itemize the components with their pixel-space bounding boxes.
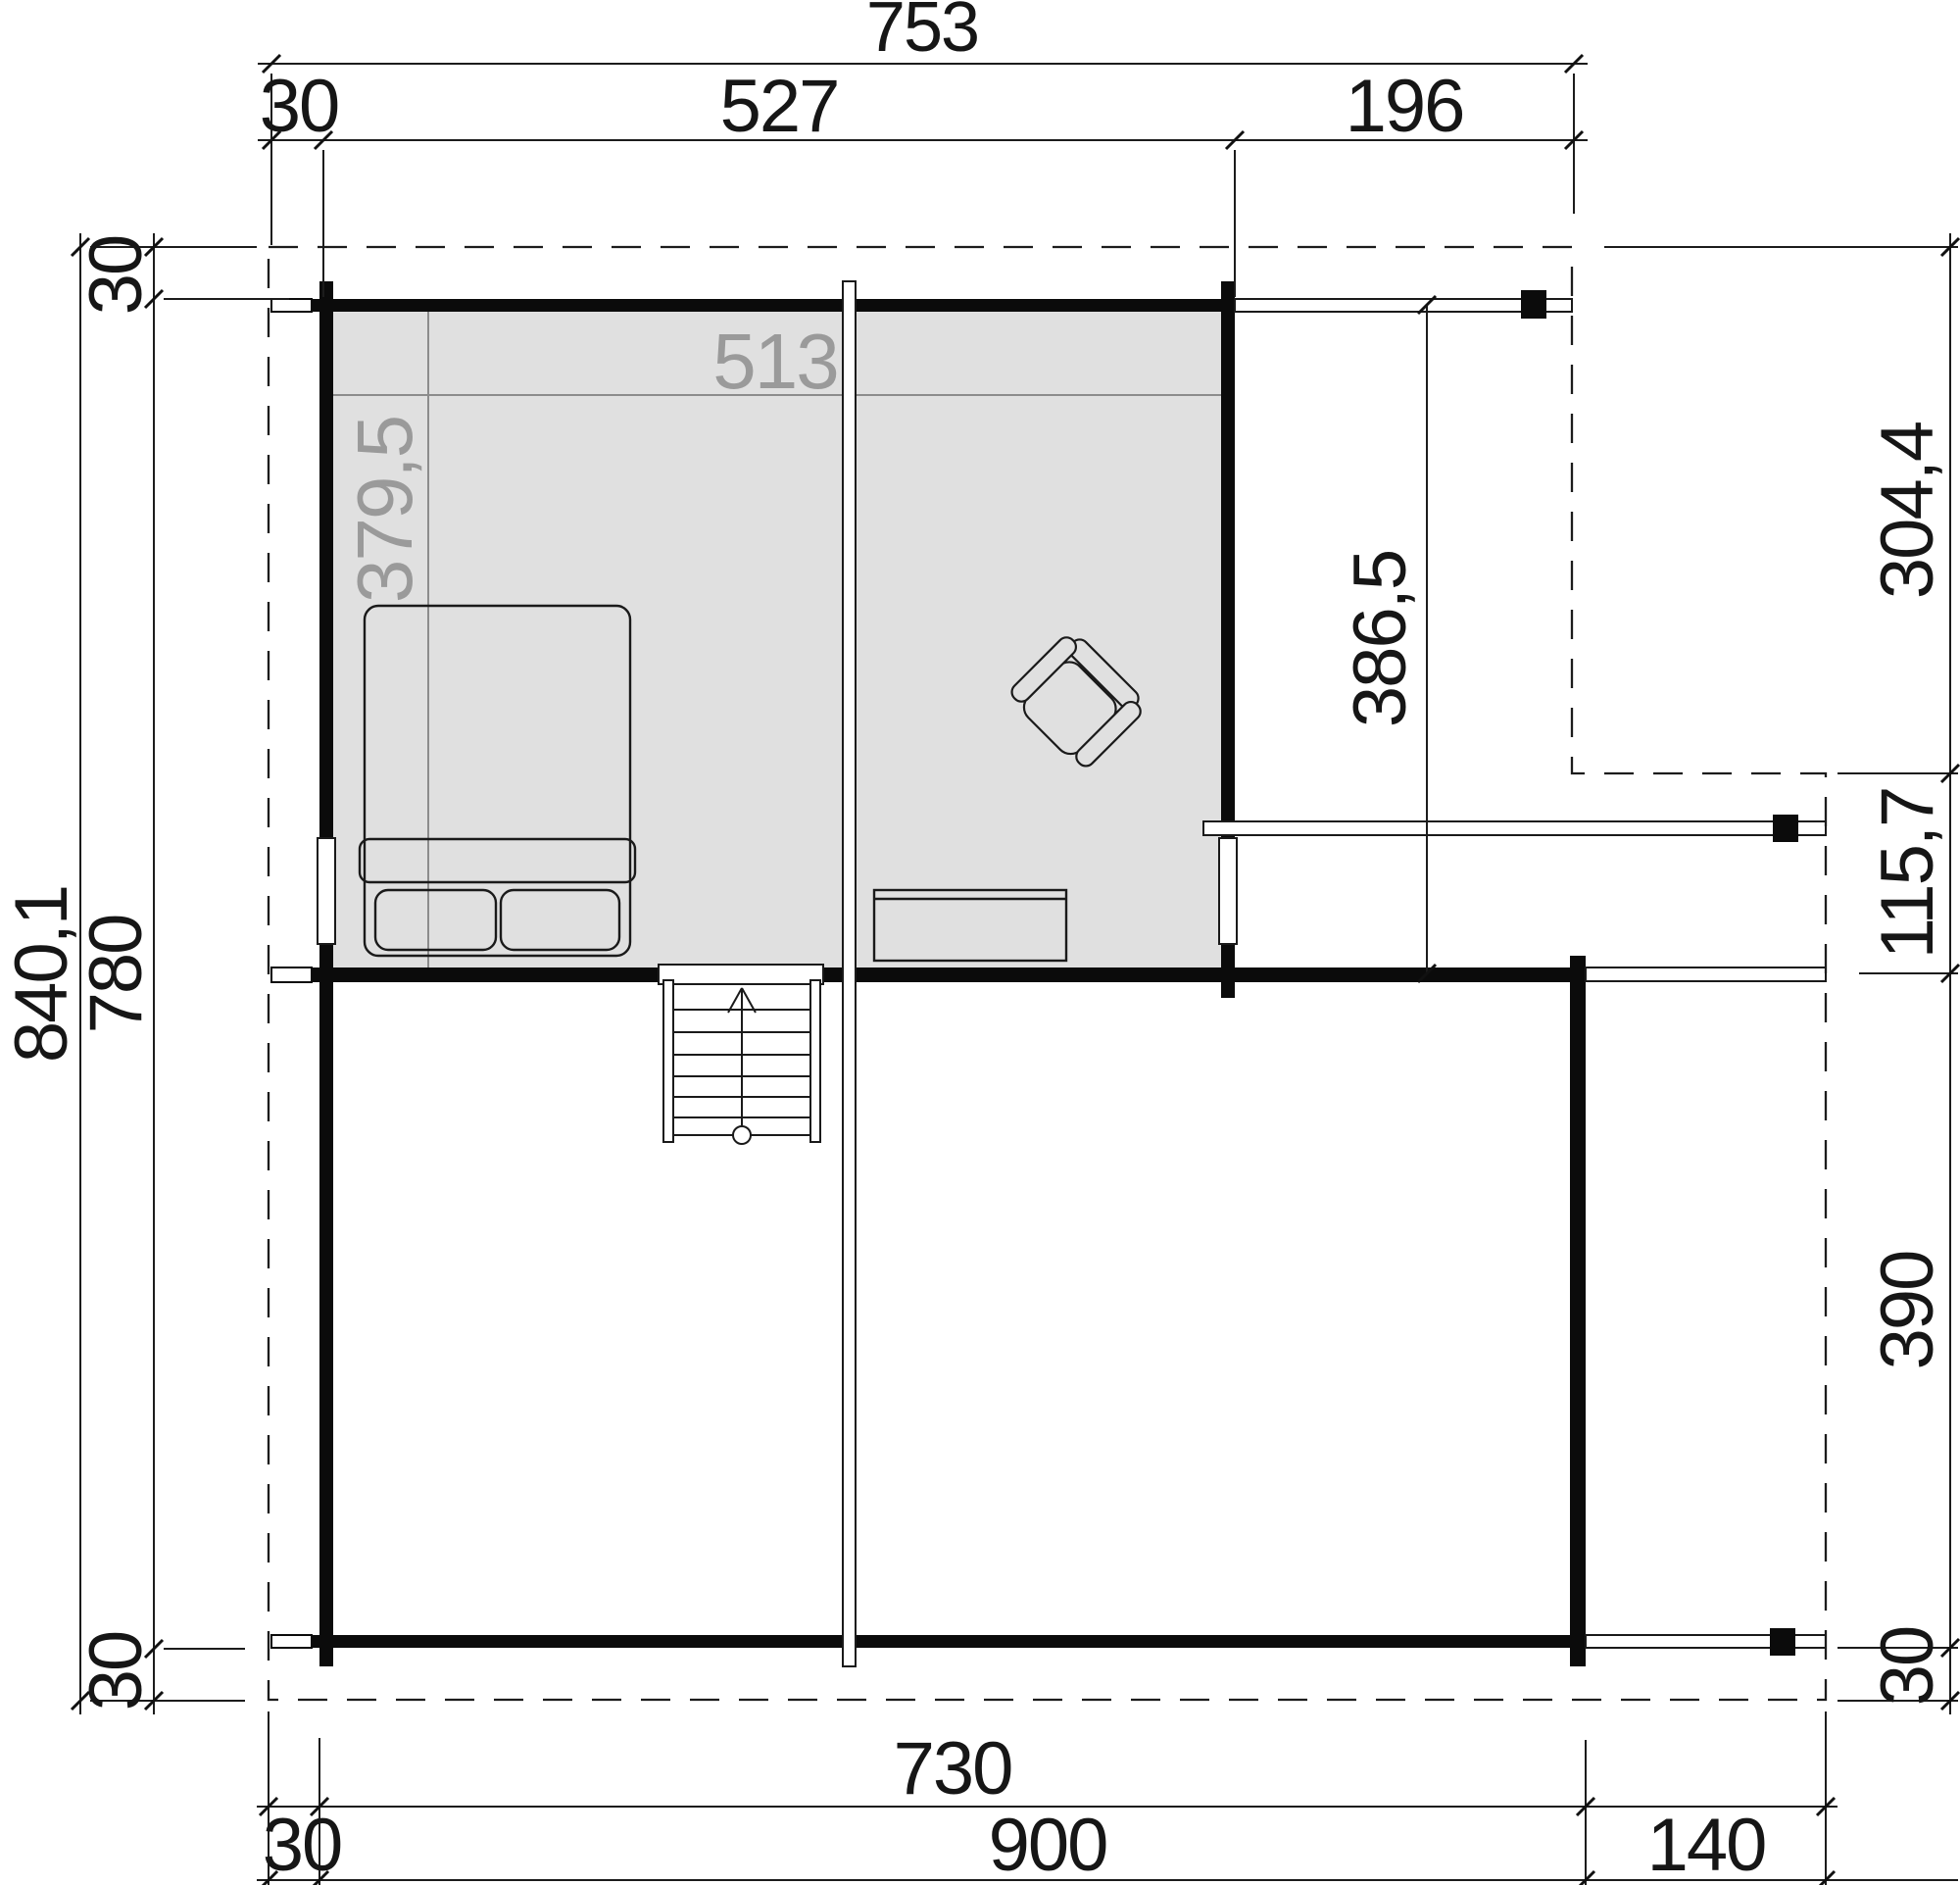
stairs-stringer-right	[810, 980, 820, 1142]
dim-top: 753 30 527 196	[258, 0, 1588, 297]
dim-label-right-304: 304,4	[1866, 422, 1949, 599]
dim-terrace: 386,5	[1339, 296, 1436, 982]
bedroom-loft-area	[333, 311, 1221, 967]
dim-left: 840,1 30 780 30	[0, 233, 289, 1714]
railing-post-middle	[1773, 815, 1798, 842]
window-right	[1219, 838, 1237, 944]
dim-label-top-overall: 753	[866, 0, 978, 67]
window-left	[318, 838, 335, 944]
stairs-landing	[659, 965, 823, 984]
log-tail-middle-left	[271, 967, 312, 982]
floor-plan-page: 513 379,5	[0, 0, 1960, 1885]
wall-bottom	[312, 1635, 1586, 1648]
loft-room-floor	[333, 311, 1221, 967]
stairs-stringer-left	[663, 980, 673, 1142]
dim-label-right-30: 30	[1866, 1627, 1949, 1707]
dim-label-left-overall: 840,1	[0, 886, 83, 1063]
glass-partition	[843, 281, 856, 1666]
dim-label-bottom-30: 30	[263, 1804, 342, 1885]
log-tail-bottom-left	[271, 1635, 312, 1648]
wall-right-lower	[1570, 956, 1586, 1666]
dim-label-right-390: 390	[1866, 1252, 1949, 1370]
dim-bottom: 730 30 900 140	[257, 1711, 1958, 1885]
dim-label-left-780: 780	[74, 916, 158, 1034]
railing-middle	[1203, 821, 1826, 835]
railing-post-bottom	[1770, 1628, 1795, 1656]
dim-label-bottom-900: 900	[989, 1804, 1107, 1885]
staircase	[659, 965, 823, 1144]
railing-terrace	[1586, 967, 1826, 981]
dim-label-loft-depth: 379,5	[341, 417, 428, 603]
wall-middle	[312, 967, 1586, 982]
dim-label-bottom-140: 140	[1647, 1804, 1766, 1885]
dim-label-terrace-depth: 386,5	[1339, 551, 1422, 727]
railing-post-top	[1521, 290, 1546, 319]
dim-label-top-196: 196	[1346, 65, 1464, 148]
dim-label-left-top-30: 30	[74, 236, 158, 316]
stairs-newel-post	[733, 1126, 751, 1144]
dim-label-left-bottom-30: 30	[74, 1632, 158, 1711]
dim-label-top-527: 527	[720, 65, 839, 148]
dim-label-right-115: 115,7	[1866, 788, 1949, 960]
log-tail-top-left	[271, 299, 312, 312]
wall-top	[312, 299, 1235, 312]
dim-label-top-30: 30	[260, 65, 339, 148]
floor-plan-drawing: 513 379,5	[0, 0, 1960, 1885]
dim-label-bottom-730: 730	[894, 1727, 1012, 1811]
dim-label-loft-width: 513	[712, 318, 837, 405]
